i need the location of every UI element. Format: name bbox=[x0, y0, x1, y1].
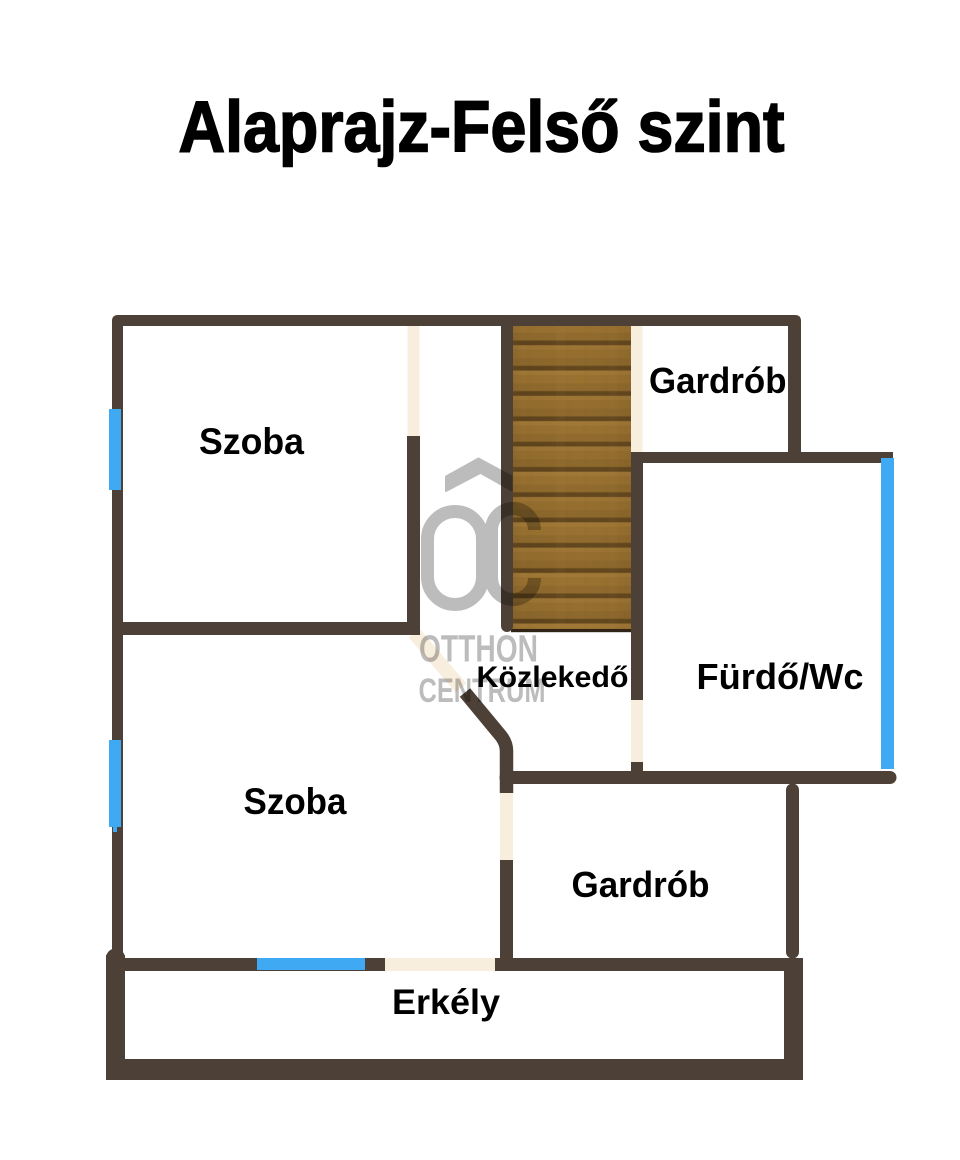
svg-text:Közlekedő: Közlekedő bbox=[477, 661, 629, 694]
svg-text:Erkély: Erkély bbox=[392, 983, 501, 1022]
svg-text:Alaprajz-Felső szint: Alaprajz-Felső szint bbox=[179, 88, 785, 168]
svg-text:Gardrób: Gardrób bbox=[572, 864, 710, 905]
svg-text:Fürdő/Wc: Fürdő/Wc bbox=[697, 656, 864, 697]
svg-text:Gardrób: Gardrób bbox=[649, 360, 787, 401]
svg-text:Szoba: Szoba bbox=[199, 421, 304, 462]
svg-text:Szoba: Szoba bbox=[244, 781, 347, 822]
